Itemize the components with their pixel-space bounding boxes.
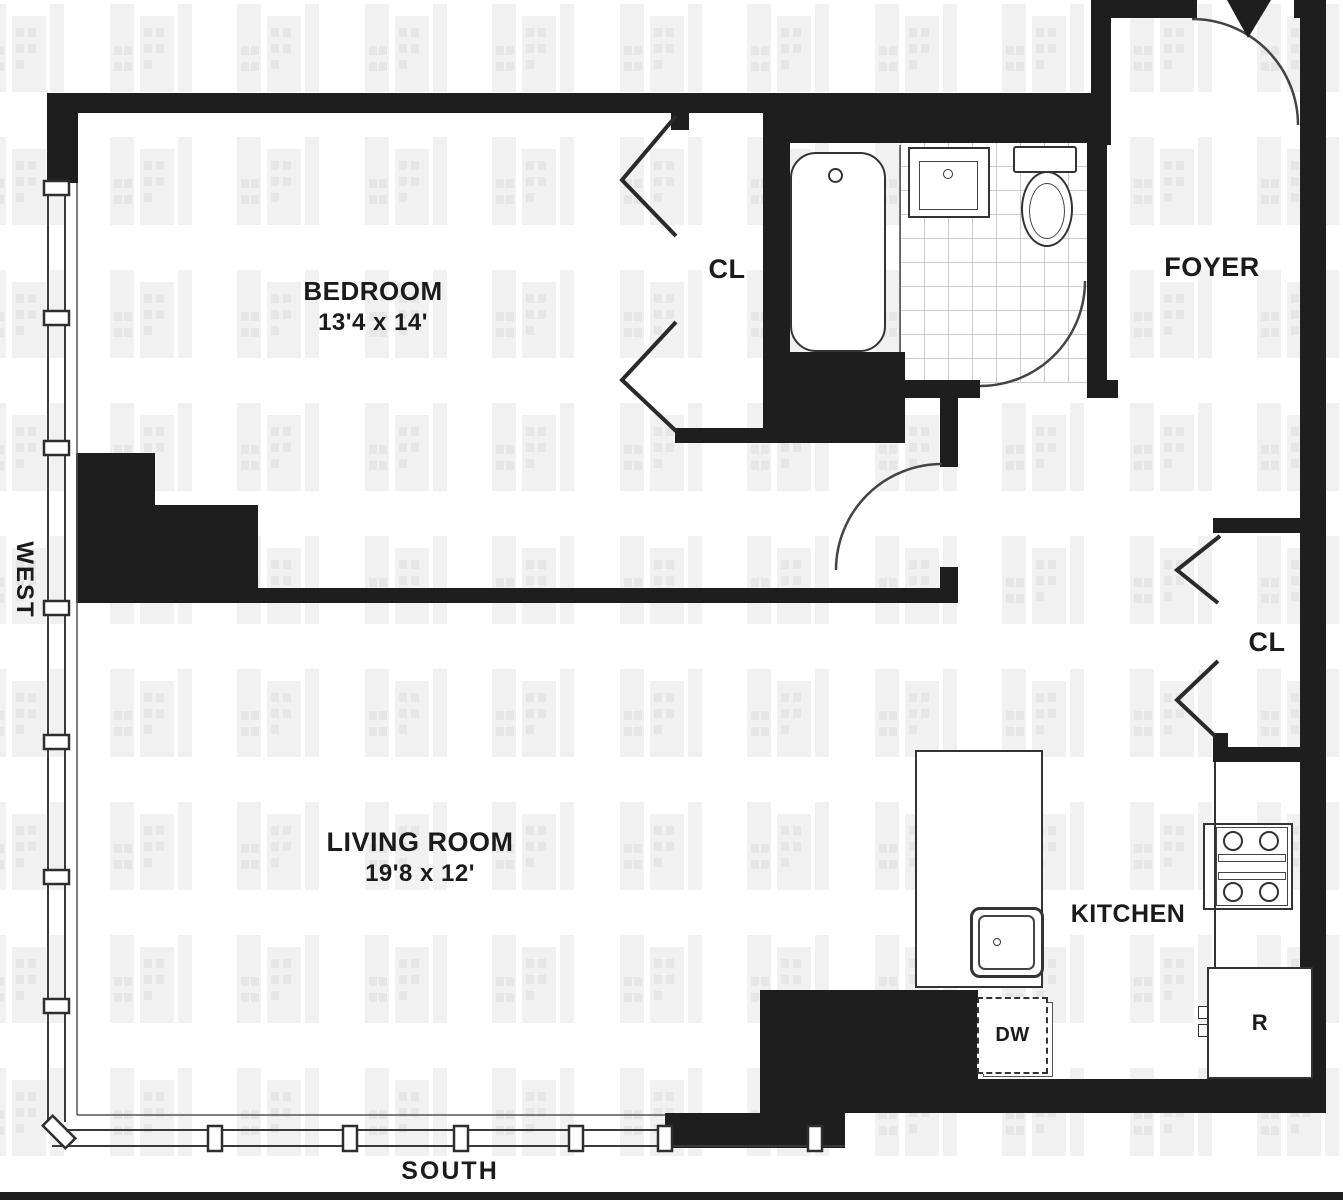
living-room-name: LIVING ROOM (290, 826, 550, 858)
south-orientation-label: SOUTH (370, 1157, 530, 1186)
west-orientation-label: WEST (10, 520, 38, 640)
labels-layer: BEDROOM 13'4 x 14' LIVING ROOM 19'8 x 12… (0, 0, 1343, 1200)
kitchen-label: KITCHEN (1048, 900, 1208, 929)
living-room-label: LIVING ROOM 19'8 x 12' (290, 826, 550, 890)
bedroom-dimensions: 13'4 x 14' (243, 307, 503, 338)
foyer-label: FOYER (1132, 252, 1292, 283)
bedroom-label: BEDROOM 13'4 x 14' (243, 276, 503, 338)
living-room-dimensions: 19'8 x 12' (290, 858, 550, 890)
bedroom-name: BEDROOM (243, 276, 503, 307)
hall-closet-label: CL (1237, 627, 1297, 658)
floor-plan: DW R (0, 0, 1343, 1200)
bedroom-closet-label: CL (697, 254, 757, 285)
